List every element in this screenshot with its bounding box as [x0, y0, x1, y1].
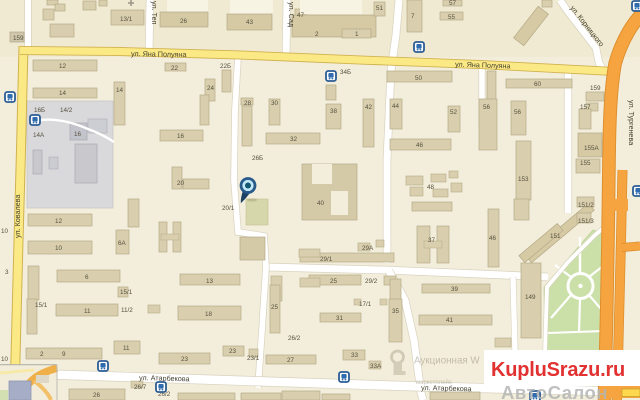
svg-text:35: 35: [392, 308, 400, 315]
svg-text:маркетплейс: маркетплейс: [416, 379, 452, 386]
svg-text:13/1: 13/1: [120, 16, 133, 23]
svg-text:16: 16: [177, 133, 185, 140]
svg-text:159: 159: [13, 35, 24, 42]
svg-text:15/1: 15/1: [120, 289, 133, 296]
svg-text:25: 25: [271, 304, 279, 311]
svg-text:22: 22: [171, 65, 179, 72]
svg-text:20: 20: [177, 180, 185, 187]
svg-text:44: 44: [392, 103, 400, 110]
svg-text:23: 23: [181, 356, 189, 363]
svg-text:27: 27: [287, 357, 295, 364]
svg-text:7: 7: [411, 13, 415, 20]
svg-text:151/2: 151/2: [578, 202, 594, 209]
svg-text:16: 16: [74, 131, 82, 138]
svg-text:42: 42: [365, 104, 373, 111]
svg-text:56: 56: [514, 109, 522, 116]
svg-text:34Б: 34Б: [340, 69, 351, 76]
svg-text:12: 12: [59, 63, 67, 70]
svg-text:1: 1: [355, 31, 359, 38]
svg-text:10: 10: [55, 245, 63, 252]
svg-text:155А: 155А: [584, 145, 600, 152]
svg-text:2: 2: [40, 351, 44, 358]
svg-text:6: 6: [85, 274, 89, 281]
svg-text:51: 51: [376, 5, 384, 12]
svg-text:ул. Ковалева: ул. Ковалева: [13, 195, 22, 238]
svg-text:41: 41: [446, 317, 454, 324]
svg-text:151/3: 151/3: [578, 218, 594, 225]
svg-text:23/1: 23/1: [247, 355, 260, 362]
svg-text:33: 33: [351, 352, 359, 359]
svg-text:KupluSrazu.ru: KupluSrazu.ru: [491, 359, 625, 381]
svg-text:46: 46: [416, 142, 424, 149]
svg-text:149: 149: [525, 294, 536, 301]
svg-text:26: 26: [93, 392, 101, 399]
svg-text:16Б: 16Б: [34, 107, 45, 114]
svg-text:31: 31: [336, 315, 344, 322]
svg-text:33А: 33А: [370, 363, 382, 370]
svg-text:11: 11: [84, 308, 91, 315]
svg-text:48: 48: [427, 184, 435, 191]
svg-text:2: 2: [315, 31, 319, 38]
svg-text:18: 18: [205, 311, 213, 318]
svg-text:ул. Тургенева: ул. Тургенева: [627, 100, 636, 145]
svg-text:22Б: 22Б: [220, 63, 231, 70]
svg-text:55: 55: [448, 14, 456, 21]
svg-text:ул. Яна Полуяна: ул. Яна Полуяна: [131, 49, 187, 59]
svg-text:157: 157: [580, 104, 591, 111]
svg-text:40: 40: [317, 200, 325, 207]
svg-text:43: 43: [246, 19, 254, 26]
svg-text:32: 32: [290, 136, 298, 143]
svg-text:29/2: 29/2: [365, 278, 378, 285]
svg-text:47: 47: [297, 12, 305, 19]
svg-text:26: 26: [180, 18, 188, 25]
svg-text:57: 57: [449, 0, 457, 7]
svg-text:46: 46: [489, 235, 497, 242]
svg-text:23: 23: [229, 348, 237, 355]
svg-text:56: 56: [483, 104, 491, 111]
svg-text:14/2: 14/2: [60, 107, 73, 114]
svg-text:29А: 29А: [362, 245, 374, 252]
svg-text:29/1: 29/1: [320, 256, 333, 263]
svg-text:159: 159: [590, 85, 601, 92]
svg-text:6А: 6А: [118, 240, 127, 247]
svg-text:26/7: 26/7: [134, 384, 147, 391]
svg-text:11: 11: [123, 345, 130, 352]
svg-text:37: 37: [428, 237, 436, 244]
svg-text:26Б: 26Б: [252, 155, 263, 162]
svg-text:151: 151: [550, 233, 561, 240]
svg-text:17/1: 17/1: [359, 301, 372, 308]
svg-text:50: 50: [415, 75, 423, 82]
svg-text:52: 52: [450, 109, 458, 116]
svg-text:ул. Теп: ул. Теп: [150, 1, 159, 25]
svg-text:15/1: 15/1: [35, 302, 48, 309]
svg-text:14: 14: [116, 87, 124, 94]
svg-text:9: 9: [62, 351, 66, 358]
svg-text:14: 14: [59, 90, 67, 97]
svg-text:24: 24: [207, 85, 215, 92]
svg-text:10: 10: [1, 228, 9, 235]
svg-text:155: 155: [580, 160, 591, 167]
svg-text:13: 13: [206, 278, 214, 285]
svg-text:28: 28: [244, 100, 252, 107]
svg-text:14А: 14А: [33, 132, 45, 139]
svg-text:26/2: 26/2: [288, 335, 301, 342]
svg-text:153: 153: [518, 176, 529, 183]
svg-text:Аукционная W: Аукционная W: [414, 356, 480, 367]
svg-text:30: 30: [271, 100, 279, 107]
svg-text:10: 10: [1, 356, 9, 363]
svg-text:20/1: 20/1: [222, 205, 235, 212]
svg-text:12: 12: [55, 218, 63, 225]
svg-text:38: 38: [330, 108, 338, 115]
svg-text:11/2: 11/2: [121, 307, 133, 314]
svg-text:39: 39: [451, 286, 459, 293]
svg-text:25: 25: [330, 278, 338, 285]
svg-text:60: 60: [534, 81, 542, 88]
svg-text:ул. Сад: ул. Сад: [287, 2, 296, 28]
svg-text:3: 3: [5, 269, 9, 276]
